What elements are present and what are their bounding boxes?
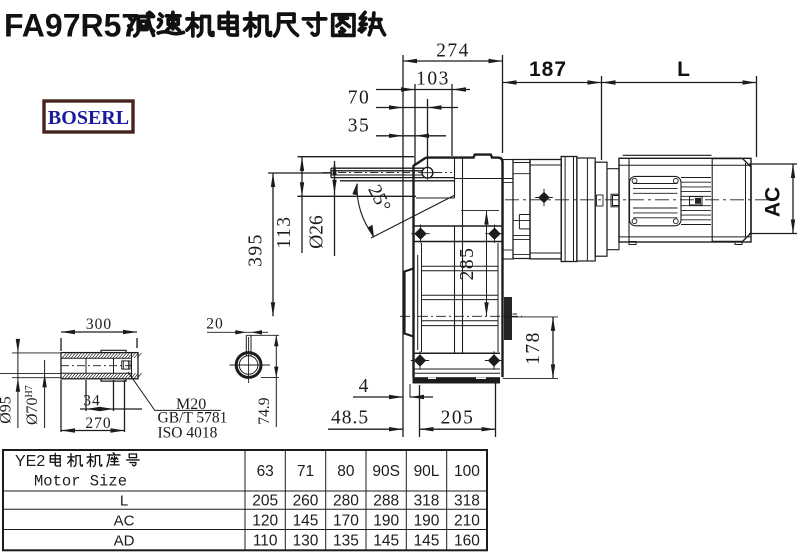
svg-text:70: 70 [348,88,371,109]
svg-text:110: 110 [253,532,278,549]
svg-text:ISO 4018: ISO 4018 [158,425,218,442]
svg-text:AC: AC [762,187,785,217]
svg-text:35: 35 [348,116,371,137]
svg-text:190: 190 [373,512,399,529]
svg-text:100: 100 [454,463,480,480]
svg-text:187: 187 [529,58,567,81]
svg-text:FA97R57: FA97R57 [4,8,139,44]
svg-text:318: 318 [454,492,480,509]
svg-text:74.9: 74.9 [256,397,273,424]
svg-text:318: 318 [414,492,440,509]
svg-text:L: L [677,58,690,81]
svg-text:Motor Size: Motor Size [34,473,127,491]
svg-text:135: 135 [333,532,359,549]
svg-text:63: 63 [257,463,274,480]
svg-text:190: 190 [414,512,440,529]
svg-text:20: 20 [206,316,224,333]
svg-text:AD: AD [114,532,135,549]
svg-text:288: 288 [373,492,399,509]
svg-text:260: 260 [293,492,319,509]
svg-text:71: 71 [297,463,314,480]
svg-text:210: 210 [454,512,480,529]
svg-text:160: 160 [454,532,480,549]
svg-text:280: 280 [333,492,359,509]
svg-text:48.5: 48.5 [331,408,369,429]
svg-text:395: 395 [246,233,267,267]
svg-text:80: 80 [337,463,355,480]
svg-text:BOSERL: BOSERL [48,107,129,129]
svg-text:274: 274 [436,41,470,62]
svg-text:145: 145 [373,532,399,549]
svg-text:145: 145 [414,532,440,549]
svg-text:145: 145 [293,512,319,529]
svg-text:300: 300 [86,316,112,333]
svg-text:113: 113 [274,215,295,248]
svg-text:AC: AC [114,512,135,529]
svg-text:120: 120 [252,512,278,529]
svg-text:130: 130 [293,532,319,549]
svg-text:90S: 90S [372,463,400,480]
svg-text:Ø26: Ø26 [307,215,328,249]
svg-text:170: 170 [333,512,359,529]
svg-text:YE2: YE2 [15,453,45,470]
svg-text:103: 103 [416,69,450,90]
svg-text:4: 4 [359,376,369,397]
svg-text:205: 205 [441,408,475,429]
svg-text:Ø95: Ø95 [0,396,15,424]
svg-text:L: L [120,492,128,509]
svg-text:34: 34 [83,393,101,410]
svg-text:205: 205 [252,492,278,509]
svg-text:270: 270 [85,415,111,432]
svg-text:285: 285 [457,247,478,281]
svg-text:178: 178 [523,331,544,365]
svg-text:90L: 90L [414,463,440,480]
